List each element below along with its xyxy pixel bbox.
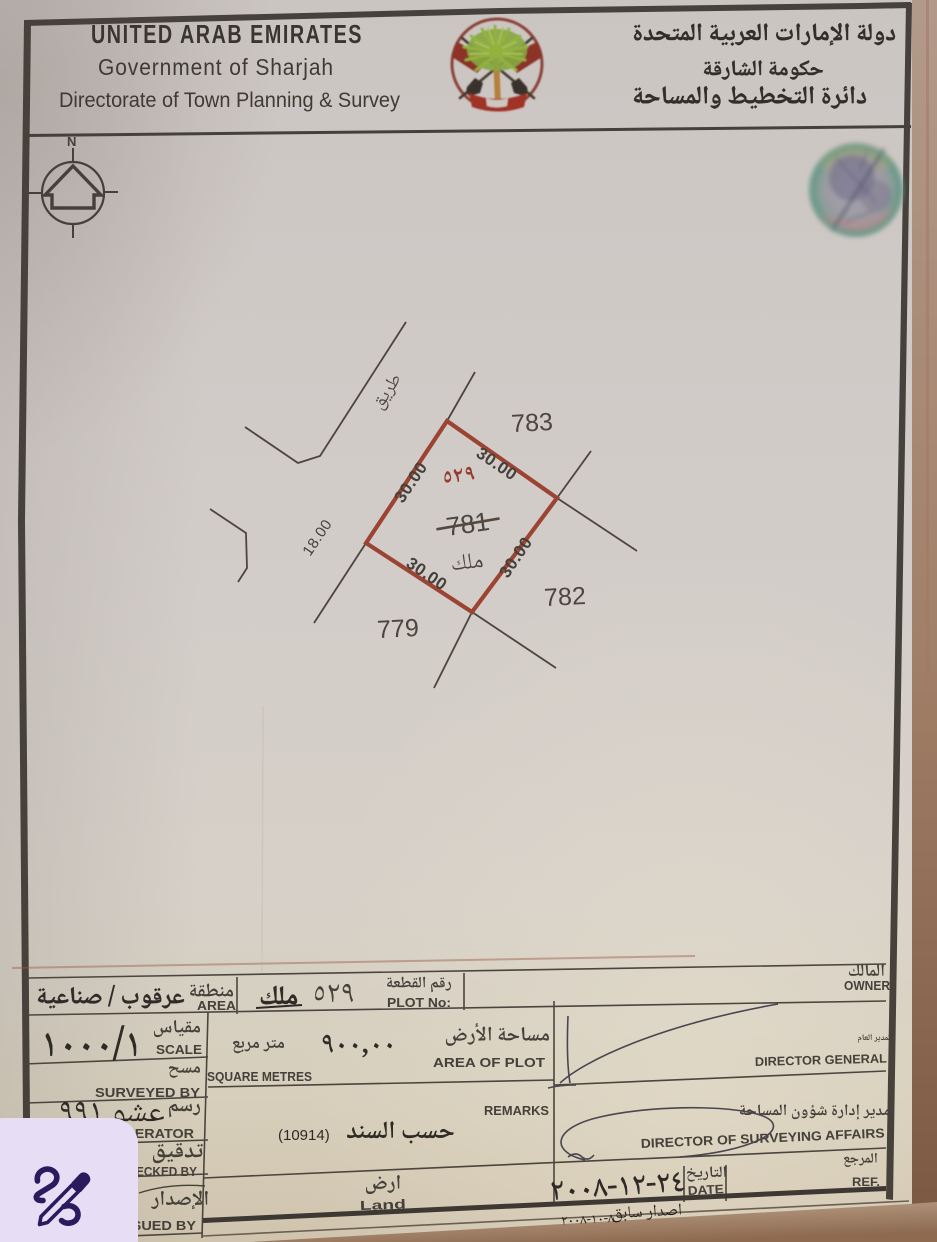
svg-text:N: N [67,134,76,149]
svg-text:Land: Land [360,1196,407,1213]
svg-text:REF.: REF. [852,1175,880,1189]
svg-text:AREA: AREA [197,999,236,1013]
svg-text:Directorate of Town Planning &: Directorate of Town Planning & Survey [59,89,400,112]
svg-text:SURVEYED BY: SURVEYED BY [95,1085,200,1100]
svg-text:783: 783 [510,408,553,438]
svg-text:DATE: DATE [687,1182,724,1198]
svg-text:REMARKS: REMARKS [484,1104,549,1118]
svg-text:SCALE: SCALE [156,1043,202,1057]
svg-text:SQUARE METRES: SQUARE METRES [207,1069,312,1084]
svg-text:PLOT No:: PLOT No: [387,996,451,1010]
svg-text:UNITED ARAB EMIRATES: UNITED ARAB EMIRATES [91,19,363,49]
svg-text:AREA OF PLOT: AREA OF PLOT [433,1055,545,1070]
svg-text:Government of Sharjah: Government of Sharjah [98,54,334,80]
svg-text:779: 779 [376,614,419,644]
svg-text:(10914): (10914) [278,1127,330,1144]
svg-text:OWNER: OWNER [844,979,890,993]
svg-text:782: 782 [543,582,586,612]
